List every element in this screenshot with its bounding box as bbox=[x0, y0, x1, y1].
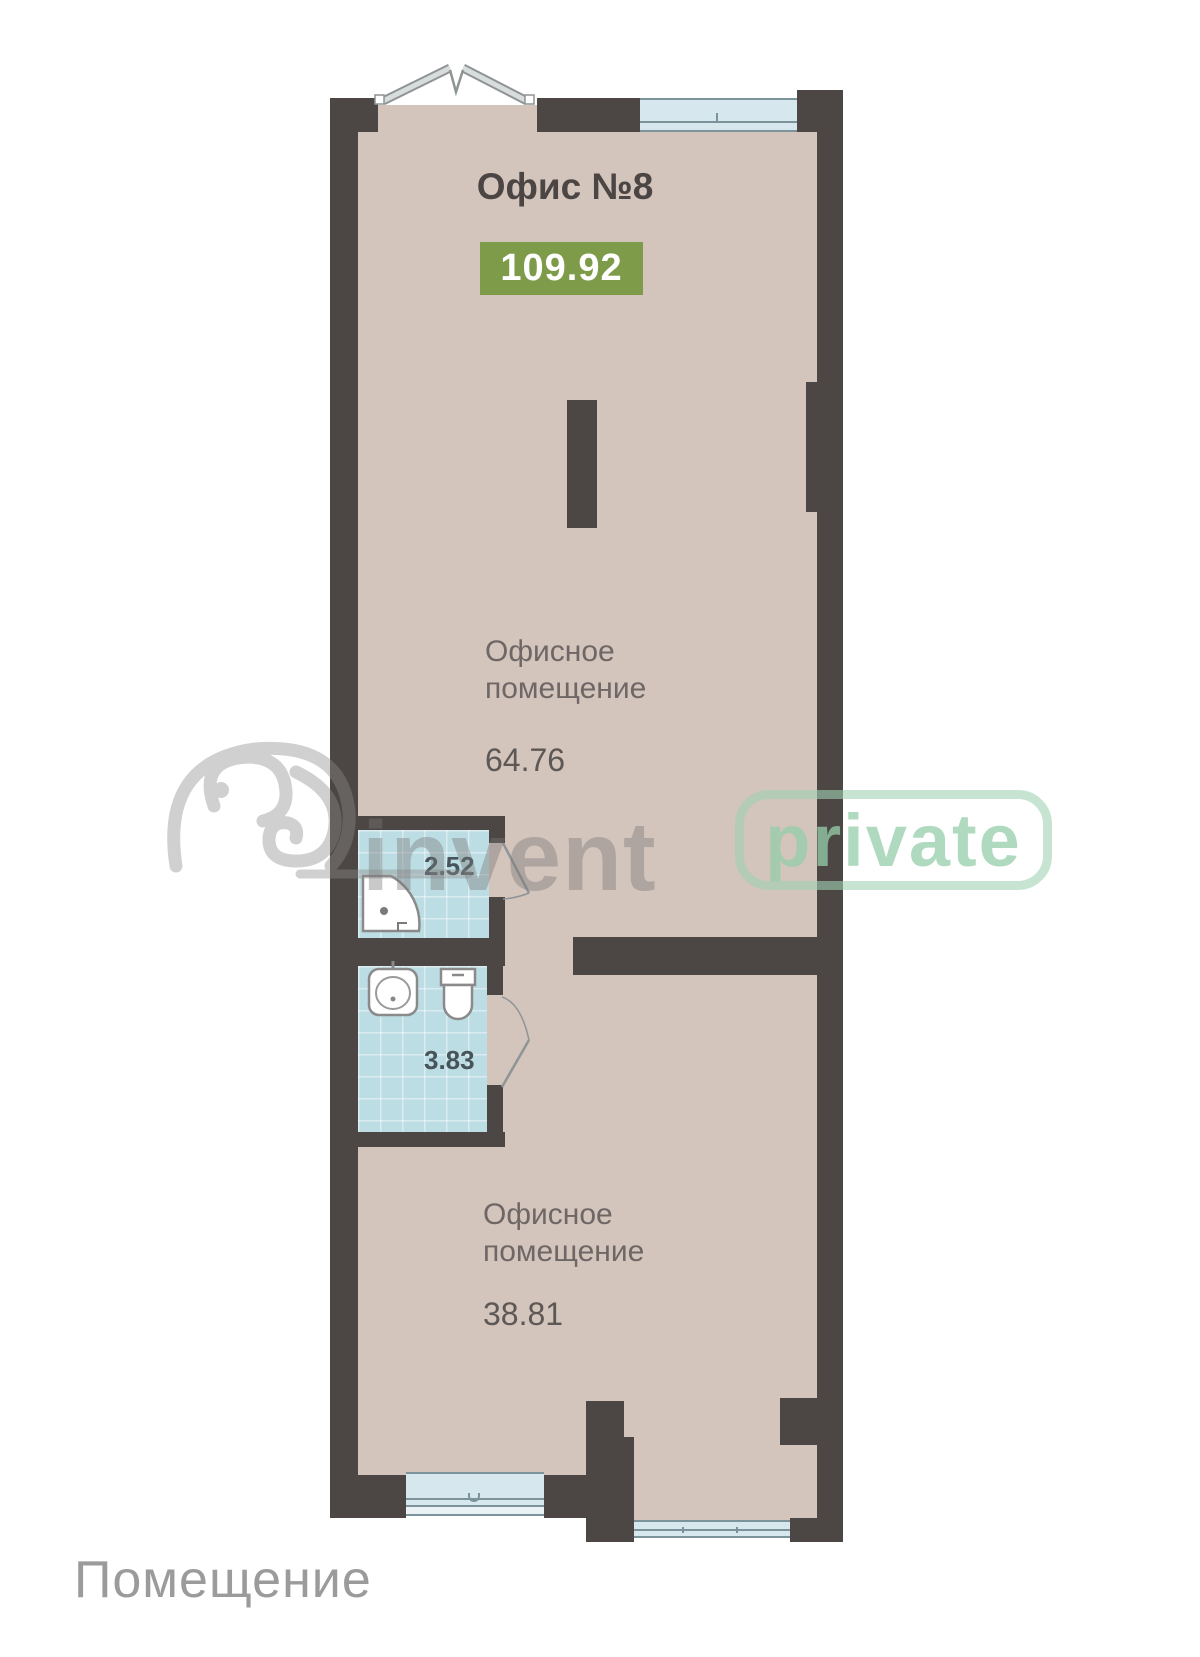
office-lower-label-line1: Офисное bbox=[483, 1196, 613, 1233]
toilet-icon bbox=[441, 969, 475, 1019]
sink-icon bbox=[369, 961, 417, 1015]
office-lower-area: 38.81 bbox=[483, 1296, 563, 1333]
invent-watermark-text: invent bbox=[362, 800, 657, 913]
wc-room-area: 3.83 bbox=[424, 1045, 475, 1076]
entrance-door-icon bbox=[375, 68, 534, 104]
plan-title: Офис №8 bbox=[450, 166, 680, 208]
office-upper-area: 64.76 bbox=[485, 742, 565, 779]
office-lower-label-line2: помещение bbox=[483, 1233, 644, 1270]
footer-room-label: Помещение bbox=[74, 1550, 372, 1610]
floorplan-page: Офис №8 109.92 Офисное помещение 64.76 2… bbox=[0, 0, 1200, 1657]
private-watermark-badge: private bbox=[735, 790, 1052, 890]
total-area-badge: 109.92 bbox=[480, 242, 643, 295]
office-upper-label-line1: Офисное bbox=[485, 633, 615, 670]
private-watermark-label: private bbox=[765, 798, 1022, 883]
wc-door-icon bbox=[502, 997, 529, 1087]
office-upper-label-line2: помещение bbox=[485, 670, 646, 707]
